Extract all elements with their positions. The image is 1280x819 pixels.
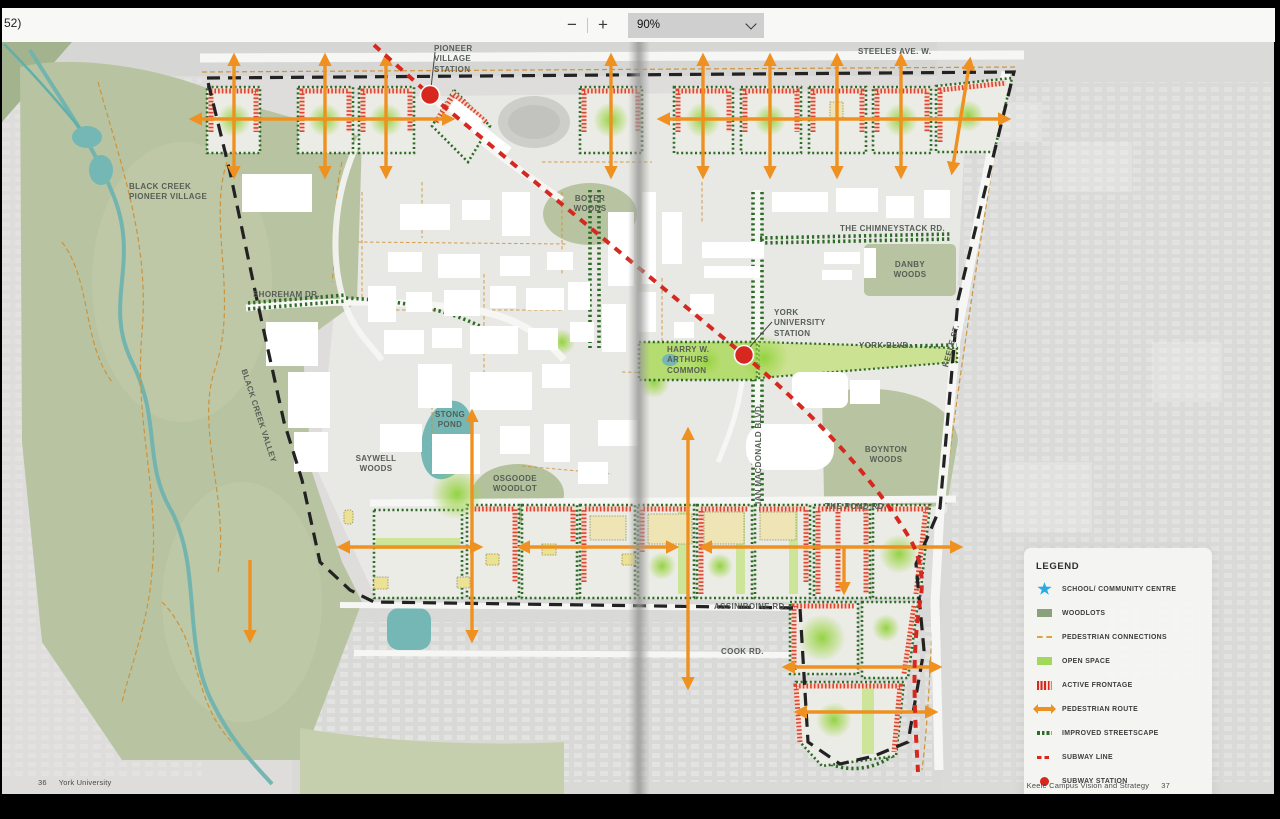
pedestrian-connections-swatch-icon (1036, 630, 1053, 644)
legend-title: LEGEND (1036, 561, 1200, 572)
legend-item: WOODLOTS (1036, 606, 1200, 620)
zoom-out-button[interactable]: − (560, 12, 584, 38)
pedestrian-route-arrow-icon (1036, 702, 1053, 716)
pdf-page-view[interactable]: PIONEER VILLAGE STATION STEELES AVE. W. … (2, 42, 1274, 794)
map-label-osgoode-woodlot: OSGOODE WOODLOT (480, 474, 550, 495)
map-label-chimneystack-rd: THE CHIMNEYSTACK RD. (840, 224, 945, 234)
pioneer-village-station-dot (421, 86, 440, 105)
map-label-boyer-woods: BOYER WOODS (562, 194, 618, 215)
zoom-level-select[interactable]: 90% (628, 13, 764, 38)
legend-item: SUBWAY LINE (1036, 750, 1200, 764)
map-legend: LEGEND SCHOOL/ COMMUNITY CENTRE WOODLOTS… (1024, 548, 1212, 794)
legend-item: IMPROVED STREETSCAPE (1036, 726, 1200, 740)
map-label-assiniboine-rd: ASSINIBOINE RD. (714, 602, 787, 612)
open-space-swatch-icon (1036, 654, 1053, 668)
map-label-pioneer-village-station: PIONEER VILLAGE STATION (434, 44, 472, 75)
zoom-in-button[interactable]: + (591, 12, 615, 38)
viewer-frame: 52) − + 90% (0, 0, 1280, 819)
map-label-york-university-station: YORK UNIVERSITY STATION (774, 308, 826, 339)
legend-item: PEDESTRIAN ROUTE (1036, 702, 1200, 716)
right-page-footer: Keele Campus Vision and Strategy 37 (1027, 781, 1170, 790)
woodlots-swatch-icon (1036, 606, 1053, 620)
map-label-the-pond-rd: THE POND RD. (825, 502, 887, 512)
chevron-down-icon (745, 18, 756, 29)
right-footer-text: Keele Campus Vision and Strategy (1027, 781, 1150, 790)
legend-item: OPEN SPACE (1036, 654, 1200, 668)
toolbar-divider (587, 18, 588, 33)
left-page-footer: 36 York University (38, 778, 112, 787)
page-indicator-partial: 52) (4, 16, 21, 30)
school-community-centre-star-icon (1036, 582, 1053, 596)
left-footer-text: York University (59, 778, 112, 787)
pdf-viewer-toolbar: 52) − + 90% (2, 8, 1275, 42)
map-label-harry-arthurs-common: HARRY W. ARTHURS COMMON (667, 345, 709, 376)
map-label-cook-rd: COOK RD. (721, 647, 764, 657)
york-university-station-dot (735, 346, 754, 365)
map-label-boynton-woods: BOYNTON WOODS (854, 445, 918, 466)
legend-item: ACTIVE FRONTAGE (1036, 678, 1200, 692)
map-label-stong-pond: STONG POND (422, 410, 478, 431)
map-label-danby-woods: DANBY WOODS (880, 260, 940, 281)
map-label-ian-macdonald-blvd: IAN MACDONALD BLVD. (754, 403, 764, 504)
map-label-saywell-woods: SAYWELL WOODS (346, 454, 406, 475)
zoom-level-value: 90% (637, 19, 660, 31)
map-label-black-creek-pioneer-village: BLACK CREEK PIONEER VILLAGE (129, 182, 207, 203)
map-label-shoreham-dr: SHOREHAM DR. (253, 290, 320, 300)
subway-line-swatch-icon (1036, 750, 1053, 764)
legend-item: PEDESTRIAN CONNECTIONS (1036, 630, 1200, 644)
improved-streetscape-swatch-icon (1036, 726, 1053, 740)
right-page-number: 37 (1161, 781, 1170, 790)
legend-item: SCHOOL/ COMMUNITY CENTRE (1036, 582, 1200, 596)
map-label-york-blvd: YORK BLVD. (859, 341, 911, 351)
active-frontage-swatch-icon (1036, 678, 1053, 692)
left-page-number: 36 (38, 778, 47, 787)
zoom-controls: − + 90% (560, 12, 764, 38)
map-label-steeles-ave: STEELES AVE. W. (858, 47, 931, 57)
page-gutter-shadow (628, 42, 650, 794)
